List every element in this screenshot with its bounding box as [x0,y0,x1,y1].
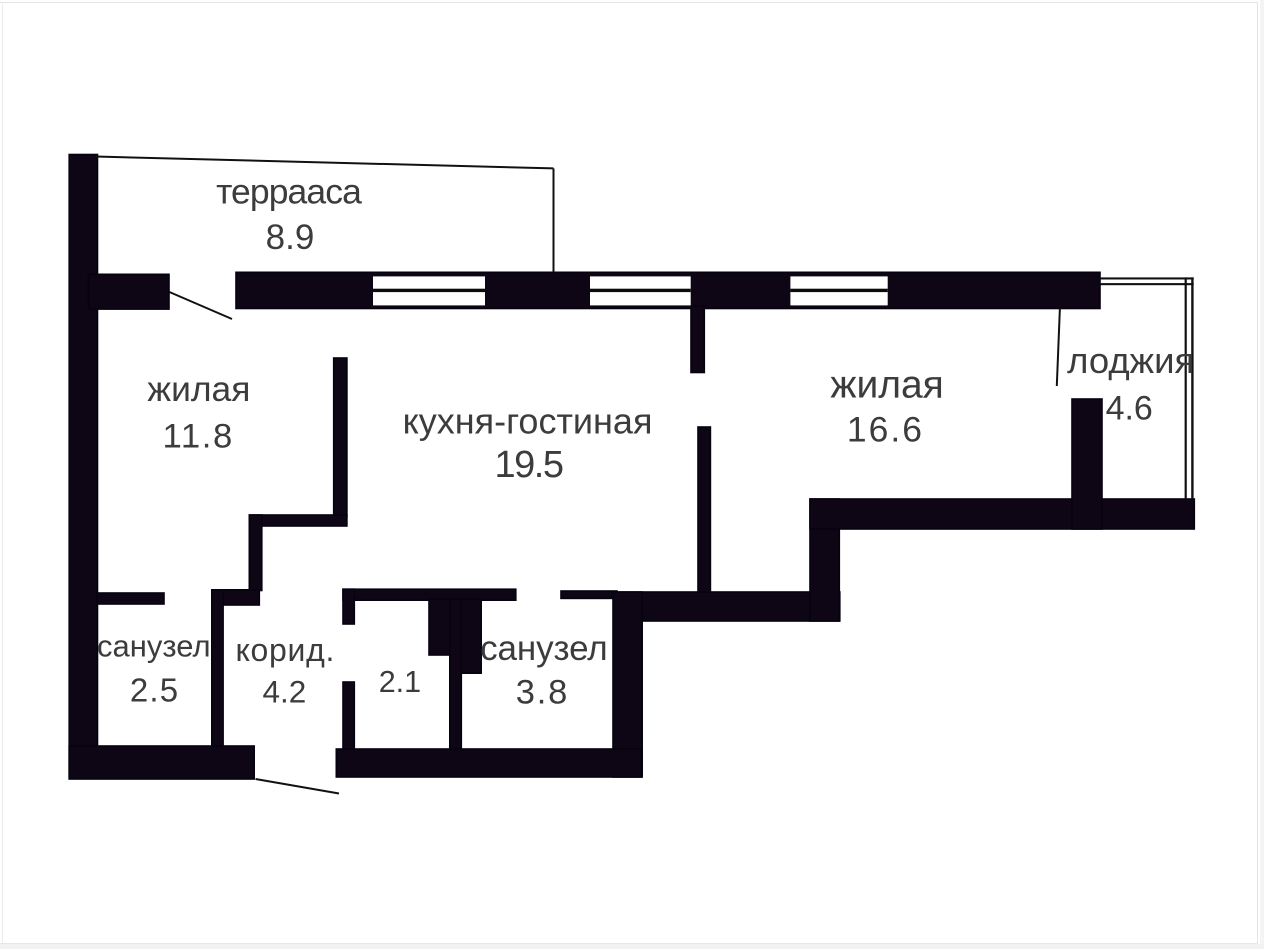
svg-text:корид.: корид. [236,632,336,668]
svg-text:16.6: 16.6 [847,410,924,450]
svg-text:жилая: жилая [147,369,250,409]
svg-text:террааса: террааса [216,172,362,212]
svg-text:4.6: 4.6 [1106,389,1153,427]
svg-text:кухня-гостиная: кухня-гостиная [403,401,653,442]
svg-text:19.5: 19.5 [495,444,563,486]
svg-text:11.8: 11.8 [163,418,234,456]
svg-text:2.5: 2.5 [130,671,179,708]
svg-text:4.2: 4.2 [263,674,307,710]
svg-text:санузел: санузел [480,629,607,668]
svg-text:санузел: санузел [97,629,211,664]
svg-text:2.1: 2.1 [379,665,421,699]
svg-text:жилая: жилая [830,364,943,407]
svg-text:лоджия: лоджия [1067,340,1194,381]
svg-text:8.9: 8.9 [266,218,315,257]
svg-text:3.8: 3.8 [516,674,569,712]
